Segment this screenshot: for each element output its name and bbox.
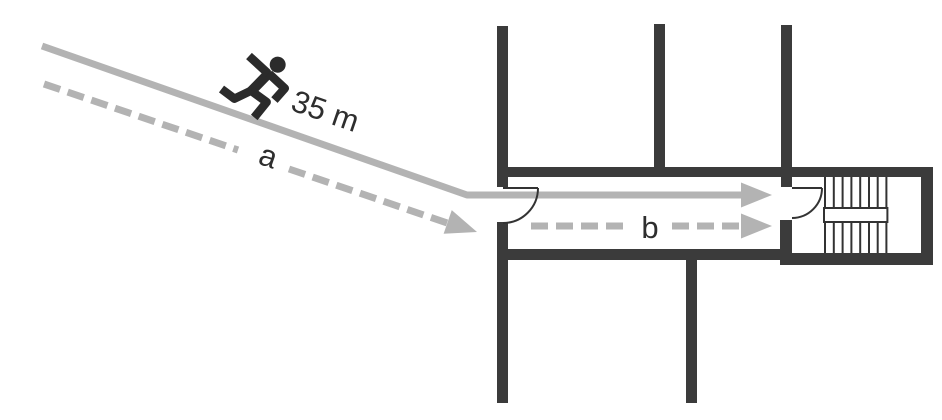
route-a-line-segment: [44, 84, 238, 150]
wall-corridor-top: [497, 167, 933, 177]
escape-route-diagram: 35 m a b: [0, 0, 942, 420]
distance-label: 35 m: [287, 83, 364, 139]
wall-middle-upper: [654, 24, 665, 177]
diagram-canvas: 35 m a b: [0, 0, 942, 420]
runner-back-arm: [246, 56, 271, 74]
wall-left-upper: [497, 26, 508, 187]
route-b-label: b: [641, 210, 658, 245]
wall-stair-bottom: [780, 253, 933, 265]
route-a-label: a: [255, 137, 283, 176]
route-direct-arrowhead: [741, 183, 772, 208]
wall-corridor-bottom: [497, 249, 792, 260]
wall-right-upper: [781, 25, 792, 187]
route-b-arrowhead: [741, 214, 772, 239]
runner-back-leg: [220, 83, 251, 102]
route-a-dashed: [44, 84, 450, 224]
door-staircase-entry: [792, 188, 822, 218]
wall-middle-lower: [686, 249, 697, 403]
route-a-arrowhead: [444, 210, 481, 244]
wall-stair-right: [921, 167, 933, 265]
door-swing-arc: [792, 188, 822, 218]
staircase: [824, 177, 887, 253]
stair-landing-band: [824, 208, 887, 222]
